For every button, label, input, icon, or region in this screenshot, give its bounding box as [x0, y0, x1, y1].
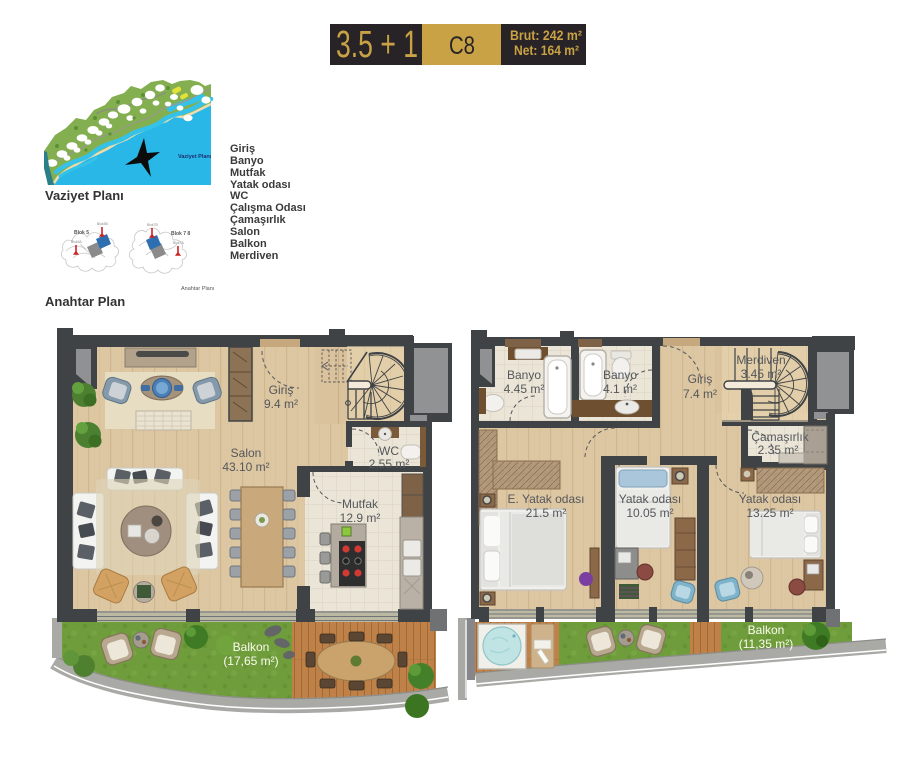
svg-text:21.5 m²: 21.5 m² — [526, 506, 567, 520]
svg-text:Merdiven: Merdiven — [230, 250, 279, 262]
svg-text:Çamaşırlık: Çamaşırlık — [230, 214, 287, 226]
svg-text:Yatak odası: Yatak odası — [739, 492, 801, 506]
svg-text:Blok5B: Blok5B — [97, 222, 108, 226]
svg-text:Yatak odası: Yatak odası — [619, 492, 681, 506]
svg-text:C8: C8 — [449, 32, 475, 60]
svg-text:Brut: 242 m²: Brut: 242 m² — [510, 27, 582, 43]
svg-text:Blok7A: Blok7A — [173, 241, 184, 245]
svg-text:4.45 m²: 4.45 m² — [504, 382, 545, 396]
svg-text:WC: WC — [379, 444, 399, 458]
svg-text:Çamaşırlık: Çamaşırlık — [751, 430, 809, 444]
svg-text:7.4 m²: 7.4 m² — [683, 387, 717, 401]
svg-text:Giriş: Giriş — [688, 372, 713, 386]
svg-text:43.10 m²: 43.10 m² — [222, 460, 269, 474]
svg-text:Balkon: Balkon — [748, 623, 785, 637]
svg-text:Giriş: Giriş — [230, 143, 255, 155]
svg-text:13.25 m²: 13.25 m² — [746, 506, 793, 520]
svg-text:Vaziyet Planı: Vaziyet Planı — [178, 154, 212, 160]
svg-text:WC: WC — [230, 190, 248, 202]
svg-text:10.05 m²: 10.05 m² — [626, 506, 673, 520]
svg-text:Mutfak: Mutfak — [342, 497, 379, 511]
svg-text:Anahtar Plan: Anahtar Plan — [45, 294, 125, 309]
svg-text:Banyo: Banyo — [230, 155, 264, 167]
svg-text:(17,65 m²): (17,65 m²) — [223, 654, 278, 668]
svg-text:Balkon: Balkon — [233, 640, 270, 654]
svg-text:Çalışma Odası: Çalışma Odası — [230, 202, 306, 214]
svg-text:4.1 m²: 4.1 m² — [603, 382, 637, 396]
svg-text:3.5 + 1: 3.5 + 1 — [336, 24, 418, 66]
svg-text:Blok7B: Blok7B — [147, 223, 158, 227]
svg-text:Vaziyet Planı: Vaziyet Planı — [45, 188, 124, 203]
svg-text:(11,35 m²): (11,35 m²) — [739, 637, 793, 651]
svg-text:Anahtar Planı: Anahtar Planı — [181, 286, 214, 292]
svg-text:Net: 164 m²: Net: 164 m² — [514, 42, 579, 58]
svg-text:Banyo: Banyo — [507, 368, 541, 382]
svg-text:2.55 m²: 2.55 m² — [369, 457, 410, 471]
svg-text:Blok 7 8: Blok 7 8 — [171, 231, 190, 237]
svg-text:Merdiven: Merdiven — [736, 353, 785, 367]
svg-text:E. Yatak odası: E. Yatak odası — [508, 492, 585, 506]
svg-text:Blok 5: Blok 5 — [74, 230, 89, 236]
svg-text:9.4 m²: 9.4 m² — [264, 397, 298, 411]
svg-text:Salon: Salon — [230, 226, 260, 238]
svg-text:Mutfak: Mutfak — [230, 167, 266, 179]
svg-text:3.45 m²: 3.45 m² — [741, 367, 782, 381]
svg-text:Banyo: Banyo — [603, 368, 637, 382]
svg-text:Salon: Salon — [231, 446, 262, 460]
svg-text:2.35 m²: 2.35 m² — [758, 443, 799, 457]
svg-text:12.9 m²: 12.9 m² — [340, 511, 381, 525]
svg-text:Giriş: Giriş — [269, 383, 294, 397]
svg-text:Blok5A: Blok5A — [71, 240, 82, 244]
svg-text:Balkon: Balkon — [230, 238, 267, 250]
